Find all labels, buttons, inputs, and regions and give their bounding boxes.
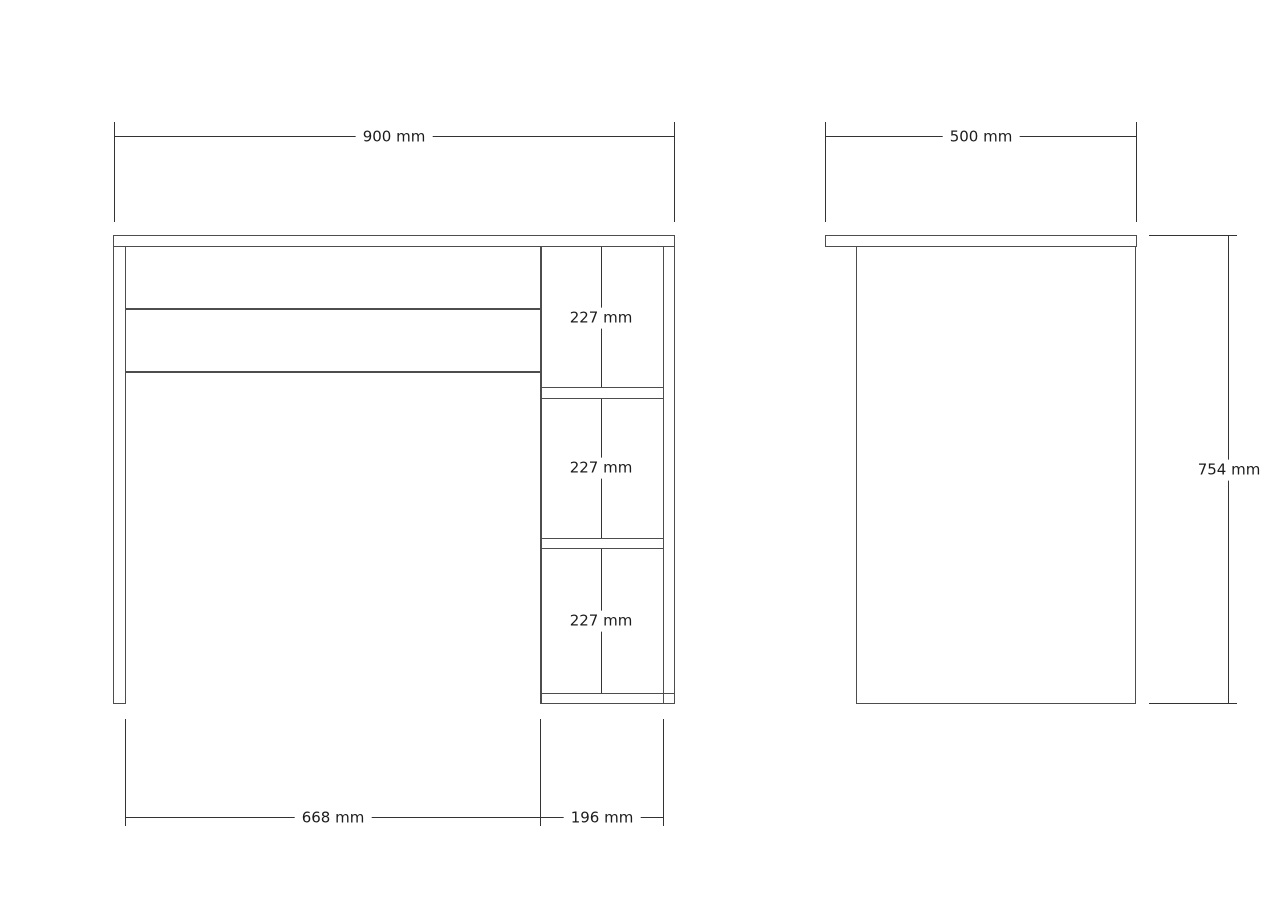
side-panel-body (856, 246, 1136, 704)
shelf-bay-width-label: 196 mm (564, 808, 641, 829)
front-drawer-divider-2 (125, 371, 541, 373)
technical-drawing-canvas: 900 mm 227 mm 227 mm 227 mm 668 mm 196 m… (0, 0, 1280, 905)
front-drawer-divider-1 (125, 308, 541, 310)
open-bay-width-label: 668 mm (295, 808, 372, 829)
shelf-opening-1-label: 227 mm (563, 308, 640, 329)
width-dim-label: 900 mm (356, 127, 433, 148)
shelf-bay-dim-ext-right (663, 719, 664, 826)
depth-dim-ext-right (1136, 122, 1137, 222)
shelf-column-left-edge (540, 246, 542, 704)
shelf-column-right-panel (663, 246, 675, 704)
shelf-board-1 (540, 387, 664, 399)
height-dim-ext-top (1149, 235, 1237, 236)
shelf-opening-3-label: 227 mm (563, 611, 640, 632)
front-left-side-panel (113, 246, 126, 704)
front-desktop-panel (113, 235, 675, 247)
depth-dim-ext-left (825, 122, 826, 222)
height-dim-ext-bottom (1149, 703, 1237, 704)
shelf-opening-2-label: 227 mm (563, 458, 640, 479)
width-dim-ext-left (114, 122, 115, 222)
shelf-board-2 (540, 538, 664, 549)
width-dim-ext-right (674, 122, 675, 222)
shelf-bottom-board (540, 693, 675, 704)
height-dim-label: 754 mm (1191, 460, 1268, 481)
open-bay-dim-ext-left (125, 719, 126, 826)
depth-dim-label: 500 mm (943, 127, 1020, 148)
open-bay-dim-ext-right (540, 719, 541, 826)
